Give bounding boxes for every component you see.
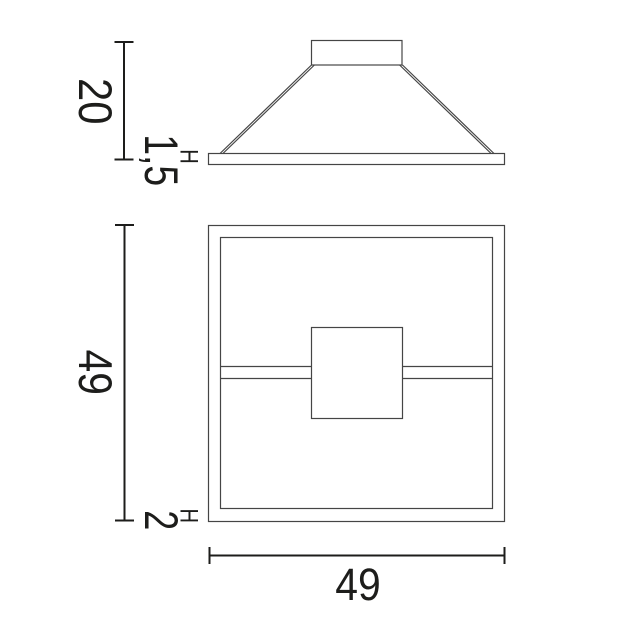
svg-text:49: 49 [335, 559, 381, 610]
svg-text:1,5: 1,5 [134, 134, 187, 186]
svg-text:20: 20 [68, 78, 121, 125]
svg-text:2: 2 [134, 510, 187, 530]
svg-text:49: 49 [68, 350, 121, 396]
